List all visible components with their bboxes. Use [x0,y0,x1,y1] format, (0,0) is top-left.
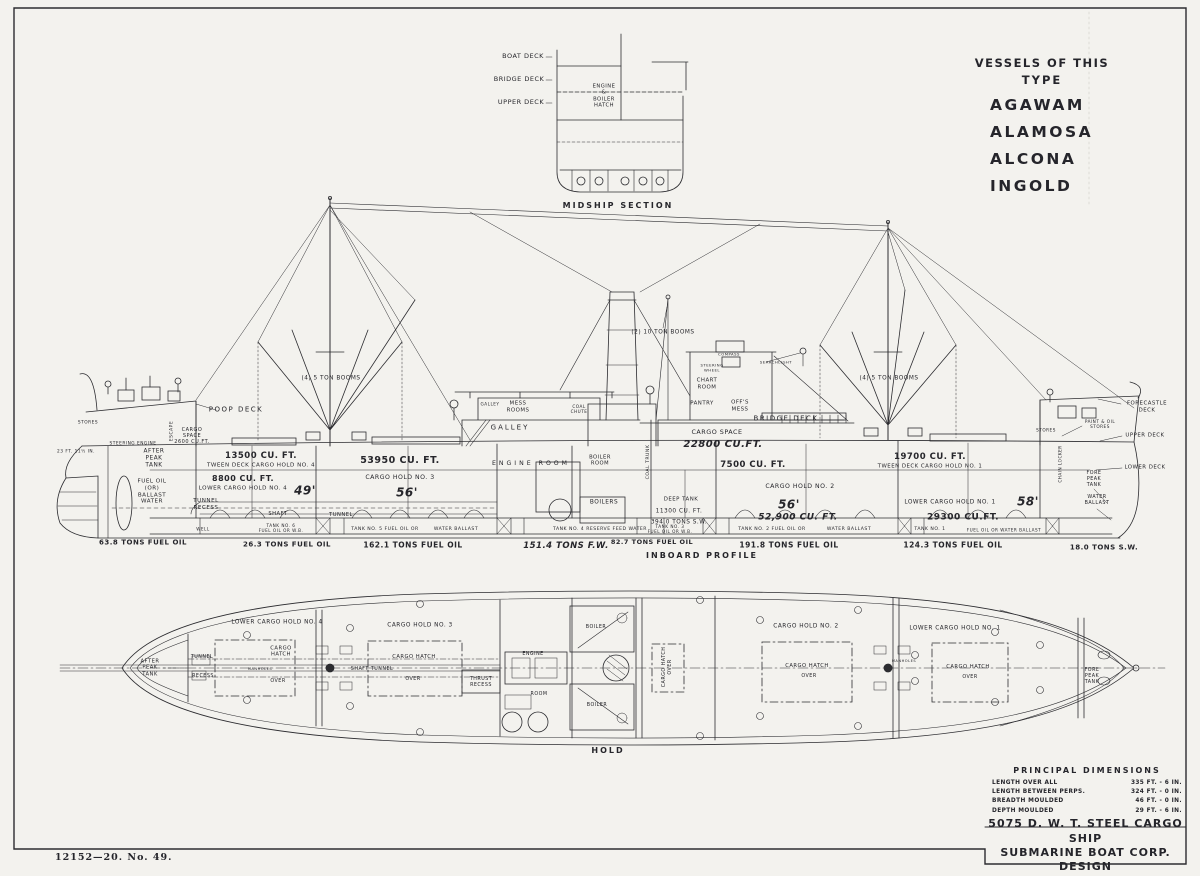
profile-tons-fo-tank6: 26.3 TONS FUEL OIL [243,541,331,550]
plan-hatch3-over: OVER [405,677,420,683]
profile-pantry: PANTRY [690,401,714,408]
profile-cargo-space-mid: CARGO SPACE [691,429,742,437]
vessel-name: ALCONA [972,150,1112,168]
profile-hold1-length: 58' [1017,495,1039,510]
profile-tween4-cuft: 13500 CU. FT. [225,451,297,461]
plan-after-peak-tank: AFTER PEAK TANK [141,658,160,677]
profile-steering-engine: STEERING ENGINE [110,441,157,446]
profile-coal-chute: COAL CHUTE [571,404,588,414]
profile-well-aft: WELL [196,526,209,531]
plan-hatch2-over: OVER [801,674,816,680]
profile-chart-room: CHART ROOM [697,377,718,390]
plan-fore-peak-tank: FORE PEAK TANK [1085,668,1100,686]
plan-engine: ENGINE [522,652,543,658]
profile-chain-locker: CHAIN LOCKER [1057,445,1062,482]
dimension-value: 324 FT. - 0 IN. [1131,789,1182,795]
midship-label-boat-deck: BOAT DECK [502,53,544,61]
vessel-name: ALAMOSA [972,123,1112,141]
midship-label-engine-boiler-hatch: ENGINE & BOILER HATCH [593,83,616,108]
plan-hatch2: CARGO HATCH [785,663,828,669]
profile-draft-mark: 23 FT. 11½ IN. [57,449,95,454]
profile-tween1-cuft: 19700 CU. FT. [894,452,966,462]
profile-tunnel: TUNNEL [329,512,353,518]
plan-lower-hold4: LOWER CARGO HOLD NO. 4 [231,619,322,626]
plan-hatch-mid: CARGO HATCH OVER [662,647,674,688]
profile-shaft: SHAFT [268,511,287,517]
plan-hold2: CARGO HOLD NO. 2 [773,623,838,630]
dimension-row: LENGTH OVER ALL 335 FT. - 6 IN. [992,780,1182,786]
profile-deep-tank-cuft: 11300 CU. FT. [656,508,703,515]
profile-stores-aft: STORES [78,420,98,425]
profile-upper-deck-fore: UPPER DECK [1125,433,1164,440]
profile-cargo-space-aft: CARGO SPACE 2600 CU.FT. [174,427,209,445]
profile-tank5-strip-2: WATER BALLAST [434,527,478,533]
profile-tunnel-recess: TUNNEL RECESS [193,498,219,512]
profile-engine-room: ENGINE ROOM [492,460,570,468]
profile-tank1-strip-2: FUEL OIL OR WATER BALLAST [967,527,1042,532]
plan-manholes-fore: MANHOLES [892,659,916,663]
plan-hatch1: CARGO HATCH [946,664,989,670]
vessels-heading-line1: VESSELS OF THIS [972,56,1112,70]
profile-galley-small: GALLEY [481,401,500,406]
profile-tons-fw: 151.4 TONS F.W. [523,541,609,551]
profile-hold3-length: 56' [396,486,418,501]
profile-tons-fo-tank1: 124.3 TONS FUEL OIL [903,540,1002,549]
inboard-profile-caption: INBOARD PROFILE [646,551,758,561]
midship-label-upper-deck: UPPER DECK [498,99,544,107]
profile-poop-deck: POOP DECK [209,406,263,415]
plan-shaft-tunnel: SHAFT TUNNEL [351,667,393,673]
plan-hold3: CARGO HOLD NO. 3 [387,622,452,629]
midship-section-caption: MIDSHIP SECTION [563,201,674,211]
hold-plan-caption: HOLD [591,746,624,756]
profile-tons-fo-afterpeak: 63.8 TONS FUEL OIL [99,539,187,548]
plan-boiler-1: BOILER [586,625,606,631]
plan-manholes-aft: MANHOLES [248,667,272,671]
plan-hatch4-over: OVER [270,679,285,685]
plate-imprint: 12152—20. No. 49. [55,852,172,863]
profile-tank5-strip: TANK NO. 5 FUEL OIL OR [351,527,418,533]
profile-coal-trunk: COAL TRUNK [646,445,652,480]
profile-hold3: CARGO HOLD NO. 3 [365,474,434,482]
plan-hatch4: CARGO HATCH [270,646,291,659]
profile-tons-fo-tank3: 82.7 TONS FUEL OIL [611,539,693,547]
profile-tank6-strip: TANK NO. 6 FUEL OIL OR W.B. [259,523,304,533]
profile-booms-mid: (2) 10 TON BOOMS [631,329,694,336]
profile-water-ballast-fore: WATER BALLAST [1085,495,1110,507]
profile-tank1-strip: TANK NO. 1 [914,527,945,533]
principal-dimensions-table: PRINCIPAL DIMENSIONS LENGTH OVER ALL 335… [992,766,1182,814]
plan-boiler-2: BOILER [587,703,607,709]
profile-compass: COMPASS [718,353,740,358]
midship-label-bridge-deck: BRIDGE DECK [494,76,545,84]
profile-booms-aft: (4) 5 TON BOOMS [301,375,360,382]
profile-paint-oil-stores: PAINT & OIL STORES [1085,419,1115,429]
dimension-value: 29 FT. - 6 IN. [1135,808,1182,814]
title-block-line2: SUBMARINE BOAT CORP. DESIGN [985,846,1186,875]
dimension-label: DEPTH MOULDED [992,808,1054,814]
dimension-label: LENGTH OVER ALL [992,780,1058,786]
dimension-label: LENGTH BETWEEN PERPS. [992,789,1085,795]
profile-boiler-room: BOILER ROOM [589,455,611,468]
profile-bridge-deck: BRIDGE DECK [754,415,819,424]
profile-tank4-strip: TANK NO. 4 RESERVE FEED WATER [553,527,647,533]
dimension-label: BREADTH MOULDED [992,798,1064,804]
profile-offs-mess: OFF'S MESS [731,399,749,412]
profile-lower1-cuft: 29300 CU.FT. [927,513,999,524]
dimension-row: DEPTH MOULDED 29 FT. - 6 IN. [992,808,1182,814]
dimension-row: LENGTH BETWEEN PERPS. 324 FT. - 0 IN. [992,789,1182,795]
profile-tank2-strip: TANK NO. 2 FUEL OIL OR [738,527,805,533]
profile-tween2-cuft: 7500 CU. FT. [720,460,786,470]
vessels-panel: VESSELS OF THIS TYPE AGAWAM ALAMOSA ALCO… [972,56,1112,195]
profile-tween1: TWEEN DECK CARGO HOLD NO. 1 [878,464,983,471]
plan-hatch3: CARGO HATCH [392,654,435,660]
plan-hatch1-over: OVER [962,675,977,681]
vessels-heading-line2: TYPE [972,73,1112,87]
profile-boilers: BOILERS [590,499,618,506]
vessel-name: INGOLD [972,177,1112,195]
profile-lower-deck-fore: LOWER DECK [1124,465,1165,472]
profile-tween4: TWEEN DECK CARGO HOLD NO. 4 [207,463,315,470]
profile-searchlight: SEARCHLIGHT [760,361,792,366]
profile-tank3-strip: TANK NO. 3 FUEL OIL OR W.B. [648,524,693,534]
title-block-line1: 5075 D. W. T. STEEL CARGO SHIP [985,817,1186,846]
profile-hold2-length: 56' [778,498,800,513]
profile-deep-tank: DEEP TANK [664,497,699,504]
principal-dimensions-title: PRINCIPAL DIMENSIONS [992,766,1182,775]
plan-thrust-recess: THRUST RECESS [470,677,492,689]
profile-lower4-cuft: 8800 CU. FT. [212,474,274,484]
profile-fuel-oil-ballast: FUEL OIL (OR) BALLAST WATER [138,478,167,505]
plan-lower-hold1: LOWER CARGO HOLD NO. 1 [909,625,1000,632]
blueprint-sheet: BOAT DECKBRIDGE DECKUPPER DECKENGINE & B… [0,0,1200,876]
profile-tank2-strip-2: WATER BALLAST [827,527,871,533]
profile-tons-sw-forepeak: 18.0 TONS S.W. [1070,544,1138,553]
profile-mess-rooms: MESS ROOMS [507,400,530,413]
profile-cargo-space-mid-cuft: 22800 CU.FT. [683,439,762,451]
profile-lower1: LOWER CARGO HOLD NO. 1 [904,499,995,506]
profile-fore-peak-tank: FORE PEAK TANK [1087,471,1102,489]
profile-after-peak-tank: AFTER PEAK TANK [144,448,165,469]
profile-stores-fore: STORES [1036,427,1056,432]
profile-hold4-length: 49' [294,484,316,499]
profile-hold3-cuft: 53950 CU. FT. [360,455,440,467]
vessel-name: AGAWAM [972,96,1112,114]
profile-hold2: CARGO HOLD NO. 2 [765,483,834,491]
profile-booms-fore: (4) 5 TON BOOMS [859,375,918,382]
dimension-value: 335 FT. - 6 IN. [1131,780,1182,786]
plan-tunnel: TUNNEL [191,655,213,661]
profile-tons-fo-tank2: 191.8 TONS FUEL OIL [739,540,838,549]
profile-galley: GALLEY [491,424,530,433]
profile-steering-wheel: STEERING WHEEL [700,363,723,372]
profile-tons-fo-tank5: 162.1 TONS FUEL OIL [363,540,462,549]
profile-forecastle-deck: FORECASTLE DECK [1127,400,1167,413]
dimension-row: BREADTH MOULDED 46 FT. - 0 IN. [992,798,1182,804]
profile-hold2-cuft: 52,900 CU. FT. [758,513,838,524]
profile-lower4: LOWER CARGO HOLD NO. 4 [199,486,287,493]
plan-room: ROOM [530,692,547,698]
title-block: 5075 D. W. T. STEEL CARGO SHIP SUBMARINE… [985,828,1186,864]
plan-recess: RECESS [192,674,214,680]
dimension-value: 46 FT. - 0 IN. [1135,798,1182,804]
